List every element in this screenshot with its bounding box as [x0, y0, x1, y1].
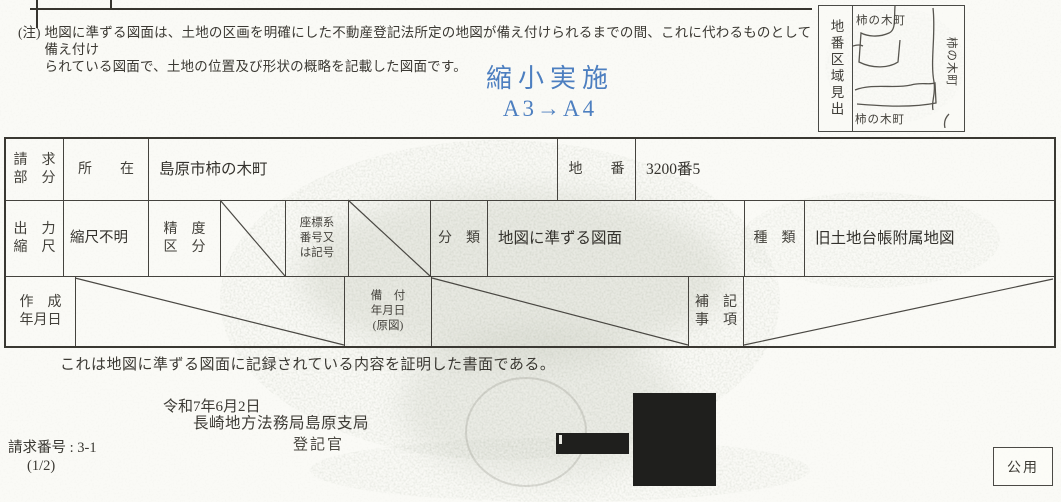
- inset-map-area: 柿の木町 柿の木町 柿の木町: [853, 6, 964, 131]
- inset-town-label: 柿の木町: [856, 12, 906, 28]
- supplementary-notes-value-empty: [744, 277, 1054, 346]
- parcel-number-value: 3200番5: [636, 139, 1054, 200]
- output-scale-label: 出 力 縮 尺: [6, 201, 64, 276]
- classification-label: 分 類: [431, 201, 488, 276]
- explanatory-note: (注) 地図に準ずる図面は、土地の区画を明確にした不動産登記法所定の地図が備え付…: [18, 24, 818, 75]
- redaction-bar: [556, 433, 629, 454]
- request-page: (1/2): [27, 458, 55, 475]
- kind-label: 種 類: [745, 201, 805, 276]
- creation-date-label: 作 成 年月日: [6, 277, 76, 346]
- kind-value: 旧土地台帳附属地図: [805, 201, 1054, 276]
- official-use-label: 公用: [1007, 457, 1039, 477]
- redaction-block: [633, 393, 716, 486]
- coordinate-system-label: 座標系 番号又 は記号: [286, 201, 349, 276]
- table-row-location: 請 求 部 分 所 在 島原市柿の木町 地 番 3200番5: [6, 139, 1054, 201]
- certificate-table: 請 求 部 分 所 在 島原市柿の木町 地 番 3200番5 出 力 縮 尺: [4, 137, 1056, 348]
- reduction-stamp-size: A3→A4: [425, 96, 675, 122]
- table-row-dates: 作 成 年月日 備 付 年月日 (原図) 補 記 事 項: [6, 277, 1054, 346]
- request-section-label: 請 求 部 分: [6, 139, 64, 200]
- location-value: 島原市柿の木町: [149, 139, 558, 200]
- precision-class-value-empty: [221, 201, 286, 276]
- reduction-stamp-text: 縮小実施: [425, 58, 675, 95]
- inset-town-label-rotated: 柿の木町: [944, 37, 960, 87]
- request-number: 請求番号 : 3-1: [8, 436, 97, 457]
- parcel-index-inset-map: 地番区域見出 柿の木町 柿の木町 柿の木町: [818, 5, 965, 132]
- coordinate-system-value-empty: [349, 201, 431, 276]
- note-prefix: (注): [18, 24, 41, 75]
- precision-class-label: 精 度 区 分: [149, 201, 221, 276]
- parcel-number-label: 地 番: [558, 139, 636, 200]
- equipped-date-value-empty: [432, 277, 689, 346]
- creation-date-value-empty: [76, 277, 345, 346]
- scanned-map-certificate: (注) 地図に準ずる図面は、土地の区画を明確にした不動産登記法所定の地図が備え付…: [0, 0, 1061, 502]
- official-use-box: 公用: [993, 447, 1053, 486]
- registrar-seal-remnant: [465, 377, 587, 487]
- output-scale-value: 縮尺不明: [64, 201, 149, 276]
- supplementary-notes-label: 補 記 事 項: [689, 277, 744, 346]
- issuing-office: 長崎地方法務局島原支局: [193, 411, 369, 433]
- certification-statement: これは地図に準ずる図面に記録されている内容を証明した書面である。: [60, 353, 555, 374]
- cutoff-tick: [110, 0, 112, 9]
- reduction-stamp: 縮小実施 A3→A4: [425, 58, 675, 122]
- inset-town-label: 柿の木町: [855, 111, 905, 127]
- classification-value: 地図に準ずる図面: [488, 201, 745, 276]
- equipped-date-label: 備 付 年月日 (原図): [345, 277, 432, 346]
- table-row-classification: 出 力 縮 尺 縮尺不明 精 度 区 分 座標系 番号又 は記号 分 類 地図に…: [6, 201, 1054, 277]
- location-label: 所 在: [64, 139, 149, 200]
- registrar-label: 登記官: [293, 433, 344, 454]
- inset-side-label: 地番区域見出: [819, 6, 853, 131]
- cutoff-rule: [30, 8, 812, 10]
